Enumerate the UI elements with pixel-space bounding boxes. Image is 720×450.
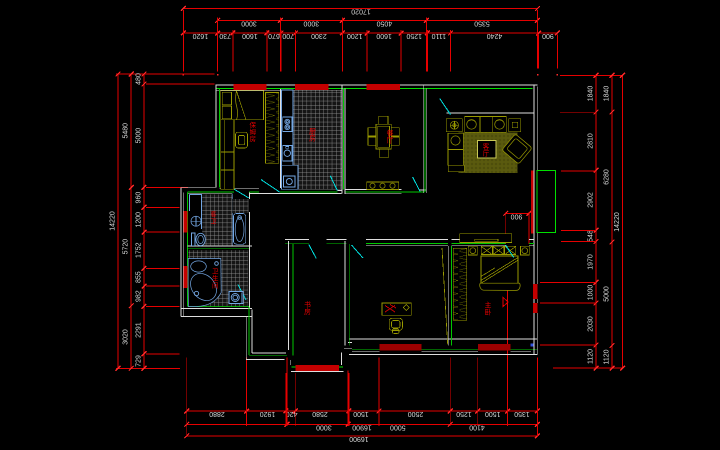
svg-text:17020: 17020 [351, 8, 371, 15]
svg-text:548: 548 [588, 230, 595, 242]
svg-text:卫生间: 卫生间 [212, 268, 219, 290]
svg-text:3000: 3000 [241, 20, 257, 27]
svg-text:2580: 2580 [312, 410, 328, 417]
svg-text:1250: 1250 [456, 410, 472, 417]
svg-text:1840: 1840 [604, 86, 611, 102]
svg-text:1200: 1200 [347, 32, 363, 39]
svg-text:2880: 2880 [209, 410, 225, 417]
svg-text:6280: 6280 [604, 169, 611, 185]
svg-text:3000: 3000 [316, 424, 332, 431]
svg-text:3000: 3000 [303, 20, 319, 27]
svg-text:2902: 2902 [588, 192, 595, 208]
svg-text:主卧: 主卧 [485, 301, 492, 317]
svg-text:480: 480 [136, 73, 143, 85]
svg-text:1500: 1500 [353, 410, 369, 417]
svg-text:4100: 4100 [469, 424, 485, 431]
svg-text:700: 700 [282, 32, 294, 39]
svg-text:670: 670 [268, 32, 280, 39]
svg-text:5720: 5720 [123, 239, 130, 255]
svg-text:14220: 14220 [614, 212, 621, 232]
svg-text:1970: 1970 [588, 254, 595, 270]
svg-text:900: 900 [542, 32, 554, 39]
svg-text:餐厅: 餐厅 [387, 129, 394, 145]
svg-text:1840: 1840 [588, 86, 595, 102]
svg-text:1110: 1110 [432, 32, 447, 39]
svg-text:3020: 3020 [123, 329, 130, 345]
svg-text:1752: 1752 [136, 242, 143, 258]
svg-text:982: 982 [136, 290, 143, 302]
svg-text:1500: 1500 [485, 410, 501, 417]
svg-text:730: 730 [219, 32, 231, 39]
svg-text:1600: 1600 [242, 32, 258, 39]
svg-text:1920: 1920 [260, 410, 276, 417]
svg-text:4050: 4050 [377, 20, 393, 27]
svg-text:1620: 1620 [193, 32, 209, 39]
svg-text:5000: 5000 [604, 286, 611, 302]
svg-text:保姆房: 保姆房 [250, 120, 257, 143]
svg-text:729: 729 [136, 355, 143, 367]
svg-text:书房: 书房 [304, 300, 311, 316]
svg-text:1250: 1250 [406, 32, 422, 39]
svg-text:1120: 1120 [588, 349, 595, 364]
svg-text:855: 855 [136, 271, 143, 283]
svg-text:厨房: 厨房 [309, 128, 316, 143]
svg-text:14220: 14220 [110, 211, 117, 231]
svg-text:1350: 1350 [514, 410, 530, 417]
svg-text:客卫: 客卫 [210, 211, 216, 226]
svg-text:5350: 5350 [474, 20, 490, 27]
svg-text:16900: 16900 [349, 435, 369, 442]
svg-text:2500: 2500 [408, 410, 424, 417]
svg-text:2030: 2030 [588, 316, 595, 332]
svg-text:960: 960 [136, 192, 143, 204]
svg-text:2291: 2291 [136, 322, 143, 338]
svg-text:5000: 5000 [390, 424, 406, 431]
svg-text:1600: 1600 [376, 32, 392, 39]
svg-text:5000: 5000 [136, 128, 143, 144]
svg-text:16900: 16900 [352, 424, 372, 431]
svg-text:4240: 4240 [487, 32, 503, 39]
svg-text:1000: 1000 [588, 285, 595, 301]
svg-text:1120: 1120 [604, 349, 611, 364]
svg-text:900: 900 [511, 213, 523, 220]
svg-text:2810: 2810 [588, 133, 595, 149]
svg-text:5480: 5480 [123, 123, 130, 139]
svg-text:1200: 1200 [136, 212, 143, 228]
svg-text:2300: 2300 [311, 32, 327, 39]
svg-text:客厅: 客厅 [483, 142, 490, 158]
